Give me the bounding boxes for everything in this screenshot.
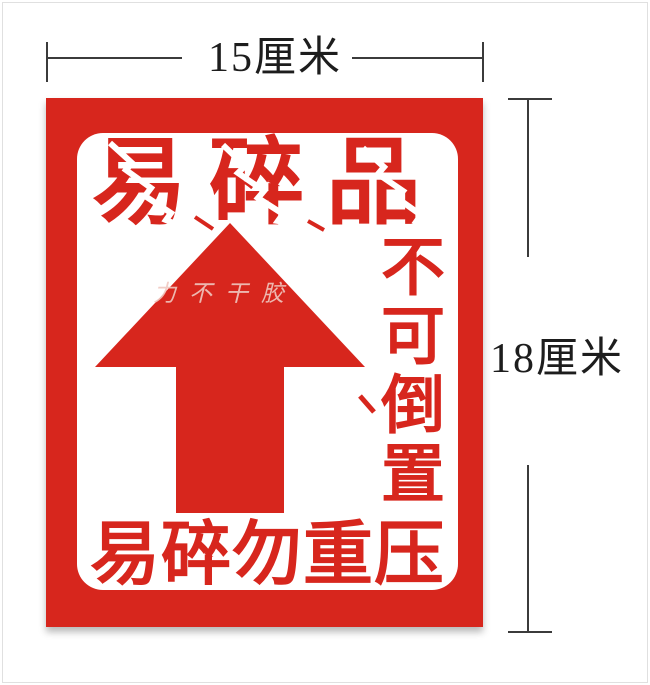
dimension-tick-bottom [508, 631, 552, 633]
dimension-line-top-segment [527, 99, 529, 257]
dimension-tick-left [46, 42, 48, 82]
fragile-sticker: 易碎品 不可倒置 易碎勿重压 力不干胶 [46, 98, 483, 627]
dimension-line-bottom-segment [527, 465, 529, 632]
sticker-side-text: 不可倒置 [368, 233, 448, 509]
up-arrow-shape [95, 223, 365, 513]
height-dimension-label: 18厘米 [490, 337, 630, 381]
dimension-tick-right [482, 42, 484, 82]
product-image: 15厘米 18厘米 易碎品 不可倒置 [0, 0, 650, 685]
watermark-text: 力不干胶 [153, 282, 297, 306]
sticker-bottom-text: 易碎勿重压 [77, 519, 458, 589]
dimension-tick-top [508, 98, 552, 100]
sticker-inner-panel: 易碎品 不可倒置 易碎勿重压 力不干胶 [77, 133, 458, 590]
dimension-line-left-segment [48, 57, 182, 59]
sticker-title: 易碎品 [77, 135, 458, 231]
dimension-line-right-segment [352, 57, 482, 59]
width-dimension-label: 15厘米 [195, 36, 355, 80]
